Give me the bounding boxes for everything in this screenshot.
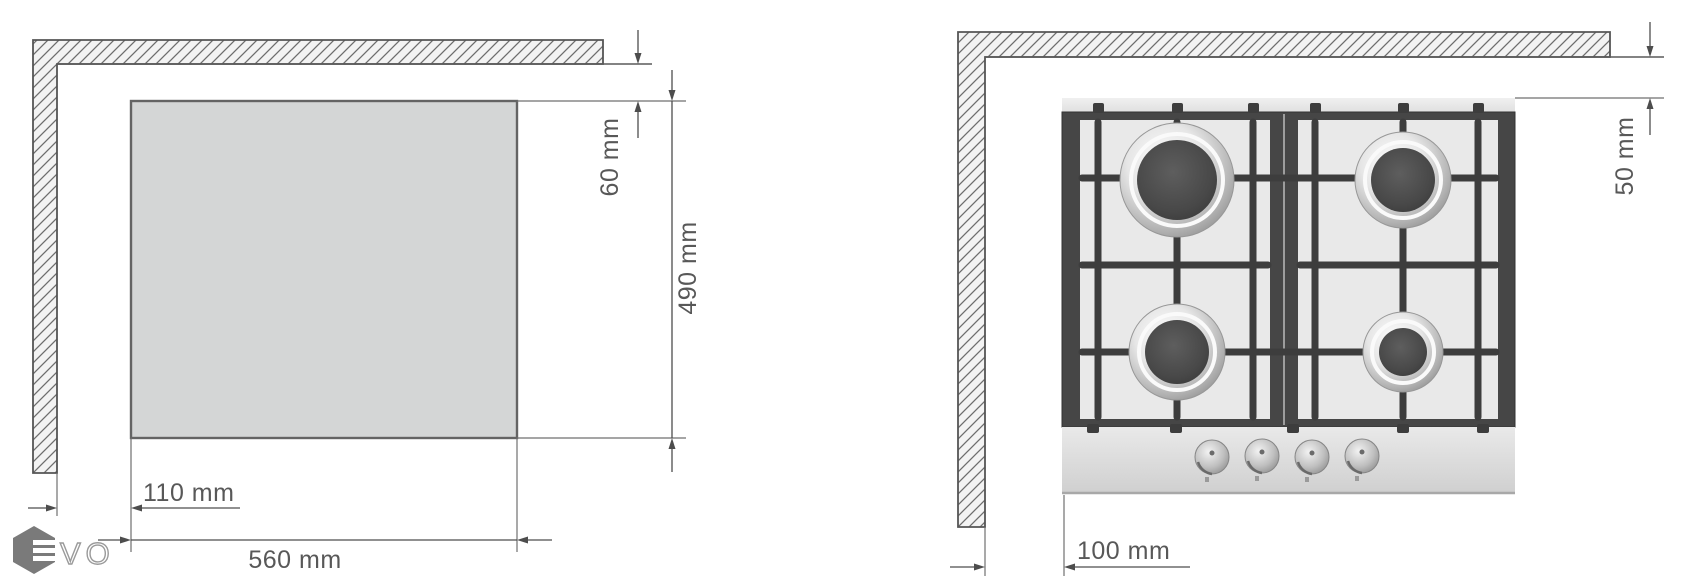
burner-top-right xyxy=(1355,132,1451,228)
dimension-label-top-gap-right: 50 mm xyxy=(1611,117,1639,196)
cutout-rect xyxy=(131,101,517,438)
dim-top-gap-right xyxy=(1647,22,1654,135)
dimension-label-top-gap-left: 60 mm xyxy=(596,118,624,197)
hexagon-e-bars xyxy=(33,540,56,561)
installation-diagram-page: 60 mm 490 mm 110 mm 560 mm xyxy=(0,0,1694,588)
burner-bottom-left xyxy=(1129,304,1225,400)
evo-logo: VO xyxy=(13,526,115,574)
installation-diagrams: 60 mm 490 mm 110 mm 560 mm xyxy=(0,0,1694,588)
dimension-label-left-offset-right: 100 mm xyxy=(1077,537,1170,565)
dimension-label-left-offset-left: 110 mm xyxy=(143,479,234,507)
dim-top-gap-left xyxy=(635,30,642,138)
cutout-diagram: 60 mm 490 mm 110 mm 560 mm xyxy=(28,30,702,574)
burner-top-left xyxy=(1120,123,1234,237)
dim-width-left xyxy=(98,537,552,544)
burner-bottom-right xyxy=(1363,312,1443,392)
dimension-label-width-left: 560 mm xyxy=(248,546,341,574)
logo-text: VO xyxy=(60,536,115,571)
dimension-label-height-left: 490 mm xyxy=(674,221,702,314)
hob-control-panel xyxy=(1062,427,1515,492)
hob-diagram: 50 mm 100 mm xyxy=(950,22,1664,576)
gas-hob xyxy=(1062,98,1515,493)
